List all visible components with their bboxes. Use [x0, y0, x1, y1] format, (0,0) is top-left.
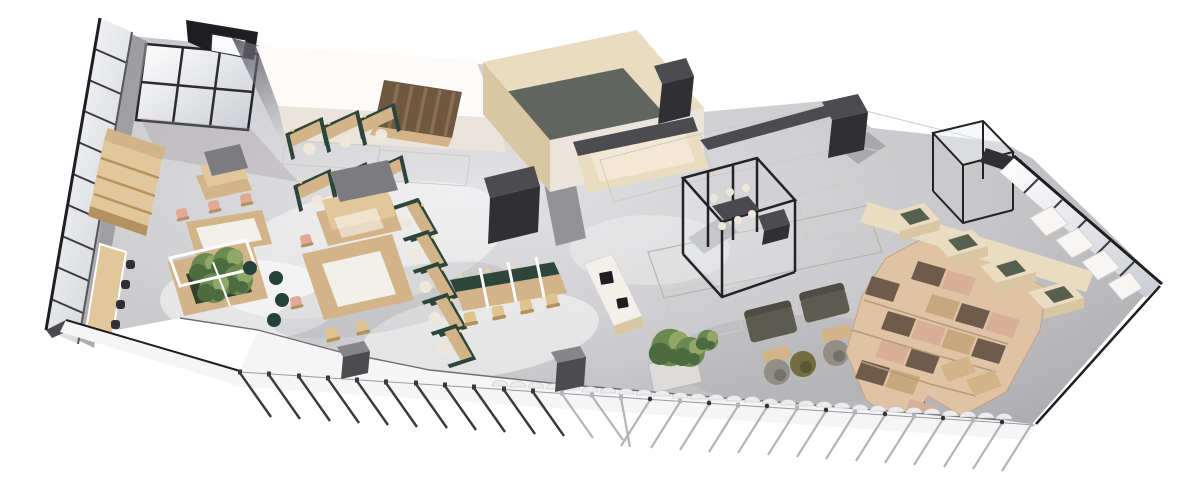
meeting-chair	[710, 194, 718, 202]
post-cap-dot	[824, 408, 828, 412]
bar-stool	[116, 300, 125, 309]
meeting-chair	[748, 210, 756, 218]
post-cap-dot	[707, 401, 711, 405]
green-chair	[269, 271, 283, 285]
meeting-chair	[718, 222, 726, 230]
green-chair	[243, 261, 257, 275]
bar-stool	[111, 320, 120, 329]
pod-seat	[800, 361, 812, 373]
post-cap-dot	[941, 416, 945, 420]
bench-light	[486, 269, 489, 272]
post-cap-dot	[648, 397, 652, 401]
floorplan-render	[0, 0, 1178, 480]
post-cap-dot	[765, 404, 769, 408]
post-cap-dot	[883, 412, 887, 416]
meeting-chair	[734, 216, 742, 224]
meeting-chair	[726, 188, 734, 196]
column-block	[484, 166, 540, 244]
green-chair	[275, 293, 289, 307]
green-chair	[267, 313, 281, 327]
post-cap-dot	[1000, 420, 1004, 424]
bench-light	[514, 264, 517, 267]
bar-stool	[126, 260, 135, 269]
isometric-office-scene	[0, 0, 1178, 480]
bench-light	[458, 274, 461, 277]
appliance	[616, 297, 629, 309]
meeting-chair	[742, 184, 750, 192]
pod-seat	[774, 369, 786, 381]
coffee-machine	[599, 271, 614, 285]
pod-seat	[833, 350, 845, 362]
bar-stool	[121, 280, 130, 289]
